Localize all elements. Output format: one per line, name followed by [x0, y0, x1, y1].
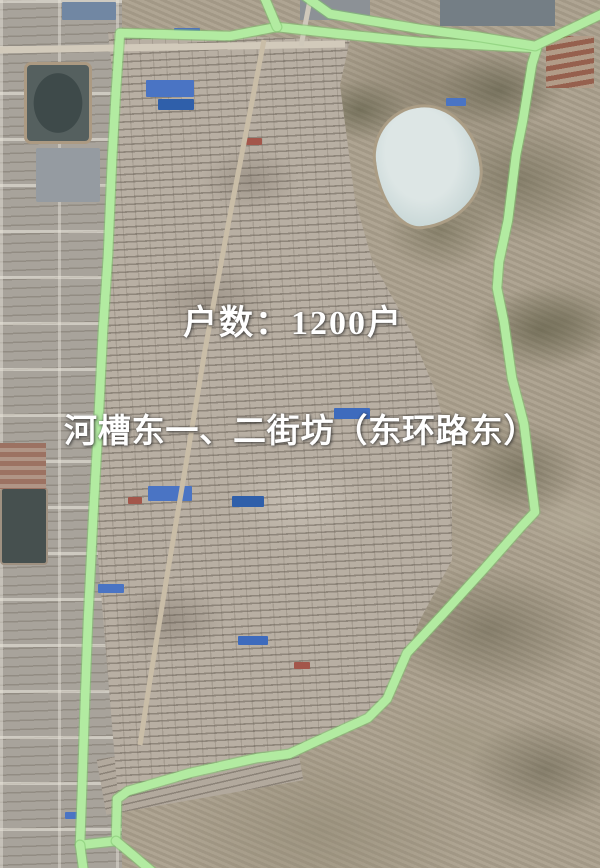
area-name-label: 河槽东一、二街坊（东环路东） [64, 416, 537, 449]
satellite-map-image: 户数：1200户 河槽东一、二街坊（东环路东） [0, 0, 600, 868]
roads [0, 0, 345, 745]
households-label: 户数：1200户 [183, 307, 403, 341]
